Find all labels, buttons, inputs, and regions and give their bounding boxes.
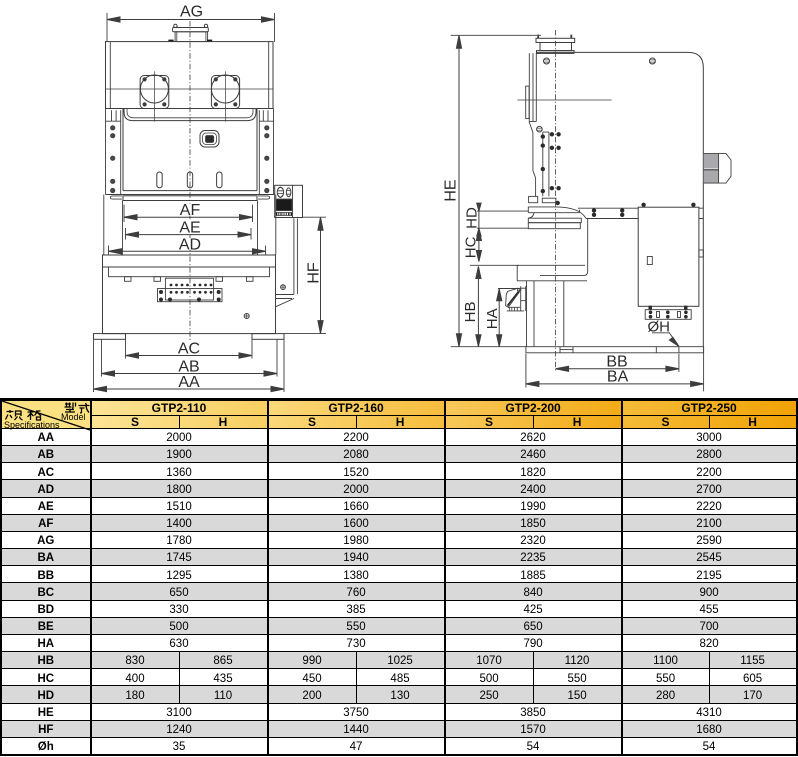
svg-text:AD: AD <box>179 237 201 254</box>
svg-text:HB: HB <box>462 301 479 322</box>
svg-text:AC: AC <box>178 340 200 357</box>
svg-text:AG: AG <box>180 4 203 21</box>
svg-text:HE: HE <box>442 179 459 201</box>
svg-text:HA: HA <box>484 308 501 329</box>
svg-text:AF: AF <box>180 202 201 219</box>
svg-text:Specifications: Specifications <box>4 420 60 430</box>
svg-text:HD: HD <box>463 207 480 229</box>
svg-text:BA: BA <box>607 369 629 386</box>
svg-text:HC: HC <box>463 236 480 258</box>
svg-text:HF: HF <box>306 262 323 284</box>
svg-text:AE: AE <box>179 220 200 237</box>
svg-text:Model: Model <box>61 412 86 422</box>
svg-text:AA: AA <box>178 374 200 391</box>
svg-text:AB: AB <box>178 358 199 375</box>
